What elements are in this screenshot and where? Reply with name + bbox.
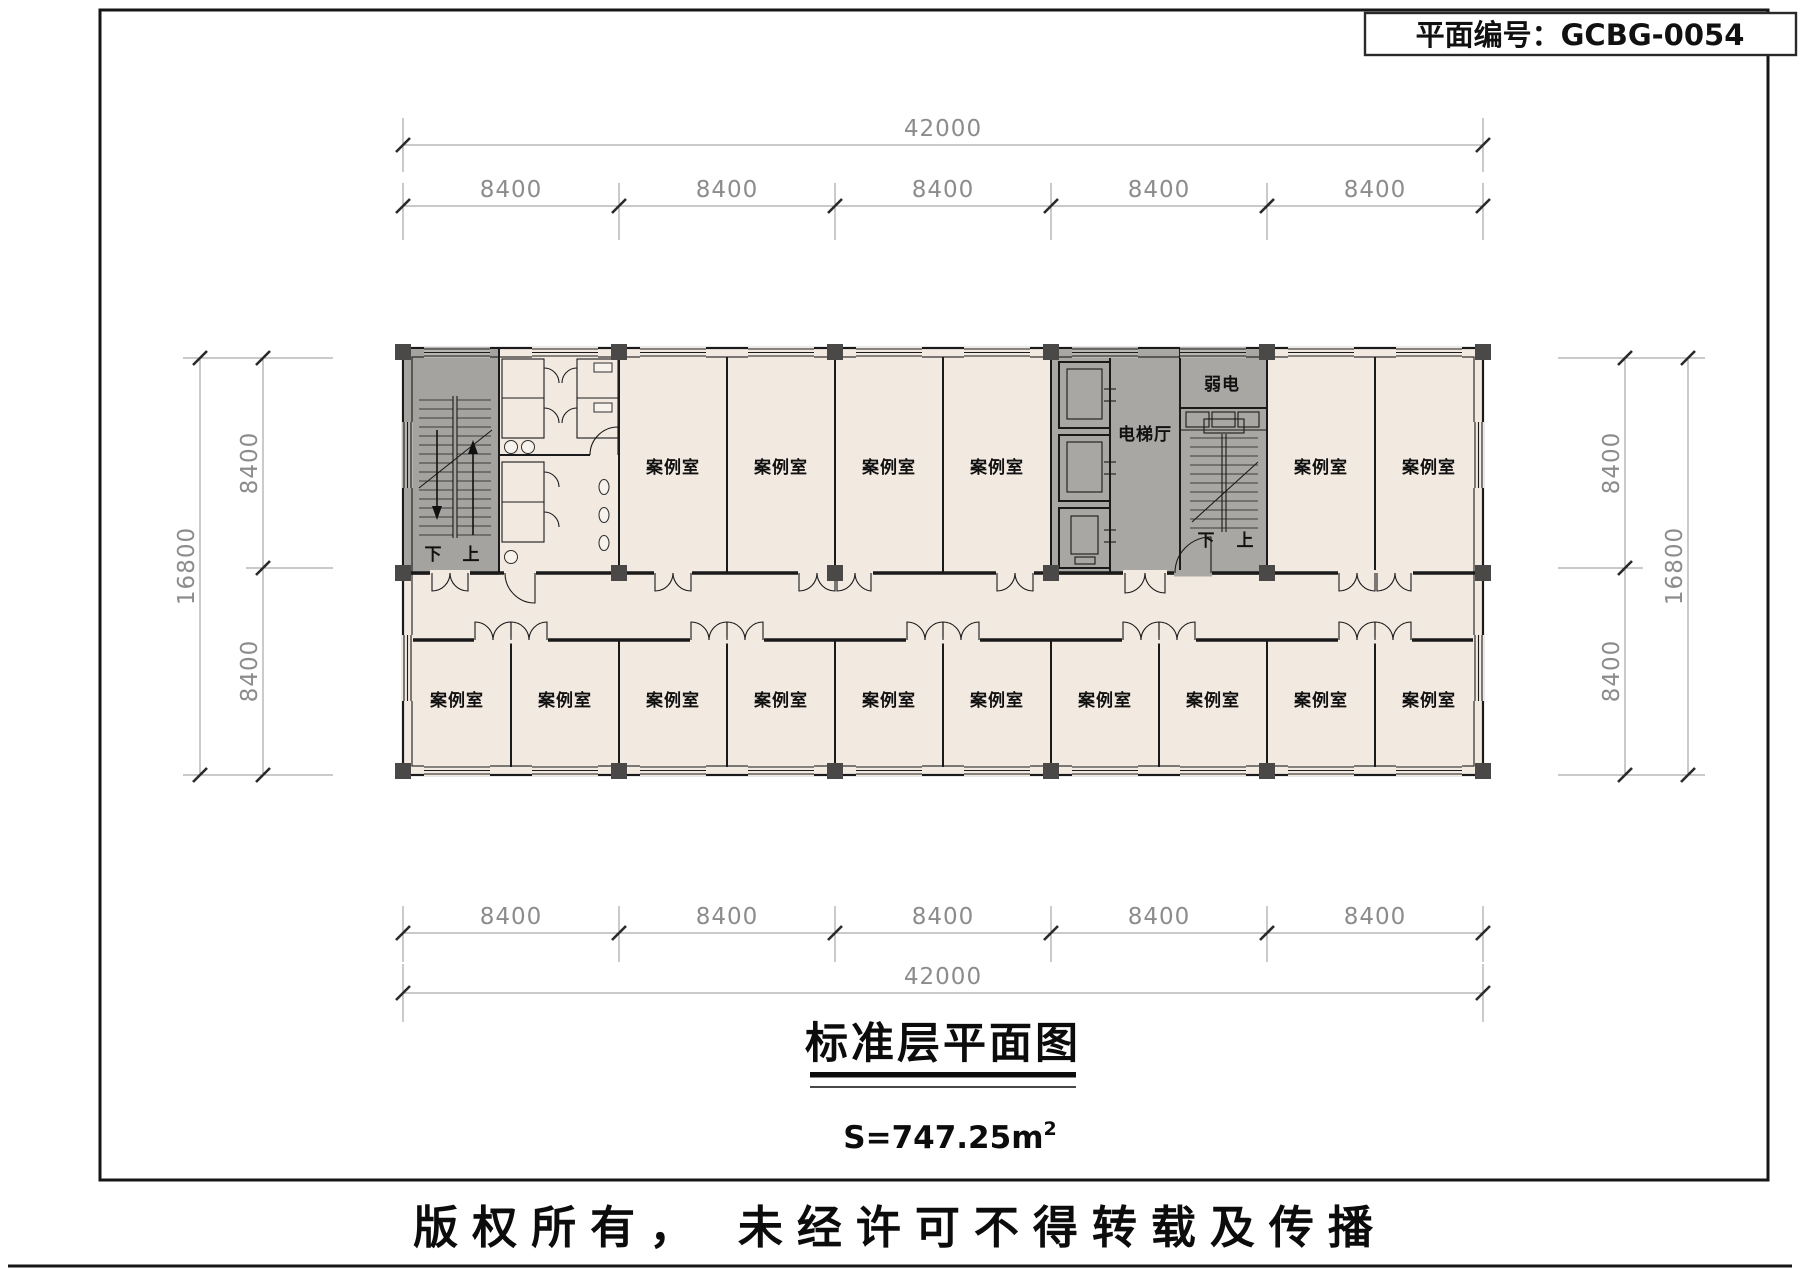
- dim-top-total: 42000: [904, 116, 982, 142]
- dim-top-bay: 8400: [1128, 177, 1191, 203]
- room-label: 案例室: [1401, 457, 1456, 478]
- drawing-title: 标准层平面图: [805, 1019, 1081, 1069]
- dim-top-bay: 8400: [912, 177, 975, 203]
- right-dimensions: 8400 8400 16800: [1558, 351, 1705, 782]
- dim-left-total: 16800: [174, 527, 200, 605]
- room-label: 案例室: [753, 457, 808, 478]
- room-label: 案例室: [1293, 690, 1348, 711]
- room-label: 案例室: [1185, 690, 1240, 711]
- bottom-dimensions: 8400 8400 8400 8400 8400 42000: [396, 904, 1490, 1022]
- room-label: 案例室: [753, 690, 808, 711]
- area-value: S=747.25m2: [843, 1118, 1056, 1156]
- drawing-sheet: 平面编号：GCBG-0054 42000 8400 8400 8400 8400…: [0, 0, 1800, 1273]
- room-label: 案例室: [1077, 690, 1132, 711]
- room-label: 案例室: [861, 690, 916, 711]
- weak-power-label: 弱电: [1204, 374, 1240, 395]
- room-label: 案例室: [969, 457, 1024, 478]
- dim-bottom-bay: 8400: [480, 904, 543, 930]
- title-block: 标准层平面图 S=747.25m2: [805, 1019, 1081, 1156]
- dim-bottom-bay: 8400: [912, 904, 975, 930]
- dim-top-bay: 8400: [480, 177, 543, 203]
- dim-right-bay: 8400: [1599, 432, 1625, 495]
- room-label: 案例室: [1401, 690, 1456, 711]
- dim-bottom-bay: 8400: [696, 904, 759, 930]
- dim-left-bay: 8400: [237, 640, 263, 703]
- right-stair-down-label: 下: [1198, 531, 1215, 551]
- room-label: 案例室: [429, 690, 484, 711]
- room-label: 案例室: [537, 690, 592, 711]
- copyright-notice: 版权所有， 未经许可不得转载及传播: [413, 1201, 1387, 1254]
- left-stair-up-label: 上: [463, 545, 480, 565]
- room-label: 案例室: [969, 690, 1024, 711]
- room-label: 案例室: [645, 690, 700, 711]
- building-plan: 下 上 弱电: [395, 344, 1491, 779]
- dim-top-bay: 8400: [696, 177, 759, 203]
- dim-right-total: 16800: [1662, 527, 1688, 605]
- right-stair-up-label: 上: [1237, 531, 1254, 551]
- elevator-hall-label: 电梯厅: [1118, 424, 1172, 445]
- dim-bottom-total: 42000: [904, 964, 982, 990]
- dim-right-bay: 8400: [1599, 640, 1625, 703]
- dim-top-bay: 8400: [1344, 177, 1407, 203]
- dim-bottom-bay: 8400: [1344, 904, 1407, 930]
- dim-left-bay: 8400: [237, 432, 263, 495]
- room-label: 案例室: [645, 457, 700, 478]
- left-dimensions: 16800 8400 8400: [174, 351, 333, 782]
- plan-number-label: 平面编号：GCBG-0054: [1416, 18, 1745, 52]
- top-dimensions: 42000 8400 8400 8400 8400 8400: [396, 116, 1490, 240]
- dim-bottom-bay: 8400: [1128, 904, 1191, 930]
- room-label: 案例室: [1293, 457, 1348, 478]
- room-label: 案例室: [861, 457, 916, 478]
- left-stair-down-label: 下: [425, 545, 442, 565]
- floor-plan-drawing: 平面编号：GCBG-0054 42000 8400 8400 8400 8400…: [0, 0, 1800, 1273]
